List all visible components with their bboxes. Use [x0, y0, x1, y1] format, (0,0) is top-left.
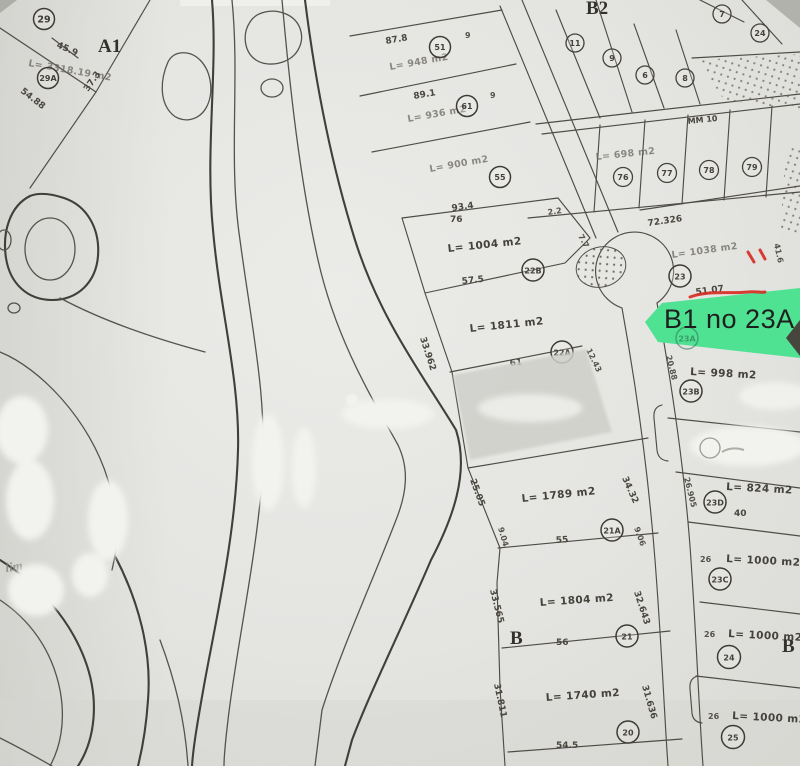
- parcel-11-number-badge: 11: [566, 34, 584, 52]
- svg-text:21A: 21A: [603, 527, 621, 536]
- svg-text:23C: 23C: [711, 576, 728, 585]
- svg-text:23B: 23B: [682, 388, 699, 397]
- parcel-61-tick: 9: [490, 91, 496, 100]
- parcel-8-number-badge: 8: [676, 69, 694, 87]
- parcel-79-number-badge: 79: [743, 158, 762, 177]
- svg-text:78: 78: [703, 166, 715, 175]
- svg-text:9: 9: [609, 54, 615, 63]
- parcel-25-number-badge: 25: [722, 726, 745, 749]
- svg-text:7: 7: [719, 10, 725, 19]
- parcel-9-number-badge: 9: [603, 49, 621, 67]
- svg-text:29A: 29A: [39, 74, 57, 83]
- parcel-51-tick: 9: [465, 31, 471, 40]
- map-canvas: lim 29 A1 45.9 L= 3318.19 m2 29A 54.88 3…: [0, 0, 800, 766]
- parcel-7-number-badge: 7: [713, 5, 731, 23]
- parcel-21-front: 56: [556, 638, 569, 648]
- parcel-20-number-badge: 20: [617, 721, 639, 743]
- highlight-label: B1 no 23A: [664, 304, 795, 334]
- zone-a1-label: A1: [98, 36, 121, 57]
- parcel-23c-number-badge: 23C: [709, 568, 731, 590]
- parcel-23d-number-badge: 23D: [704, 491, 726, 513]
- svg-text:77: 77: [661, 169, 672, 178]
- svg-text:51: 51: [434, 43, 446, 52]
- parcel-25-front-left: 26: [708, 712, 720, 721]
- parcel-6-number-badge: 6: [636, 66, 654, 84]
- svg-text:79: 79: [746, 163, 758, 172]
- svg-text:22B: 22B: [524, 267, 541, 276]
- parcel-77-number-badge: 77: [658, 164, 677, 183]
- parcel-23-number-badge: 23: [669, 265, 691, 287]
- svg-text:24: 24: [723, 654, 735, 663]
- svg-text:23D: 23D: [706, 499, 724, 508]
- parcel-23d-front: 40: [734, 509, 747, 519]
- svg-text:24: 24: [754, 29, 766, 38]
- parcel-78-number-badge: 78: [700, 161, 719, 180]
- cadastral-map-photo: lim 29 A1 45.9 L= 3318.19 m2 29A 54.88 3…: [0, 0, 800, 766]
- parcel-21-number-badge: 21: [616, 625, 638, 647]
- svg-text:76: 76: [617, 173, 629, 182]
- svg-text:20: 20: [622, 729, 634, 738]
- parcel-24-front-left: 26: [704, 630, 716, 639]
- svg-text:8: 8: [682, 74, 688, 83]
- parcel-51-number-badge: 51: [430, 37, 451, 58]
- zone-b-right-label: B: [782, 636, 795, 657]
- parcel-76-number-badge: 76: [614, 168, 633, 187]
- parcel-24b2-number-badge: 24: [751, 24, 769, 42]
- svg-text:21: 21: [621, 633, 633, 642]
- paper-background: [0, 0, 800, 766]
- parcel-24-number-badge: 24: [718, 646, 741, 669]
- parcel-61-number-badge: 61: [457, 96, 478, 117]
- svg-text:23A: 23A: [678, 335, 696, 344]
- svg-text:29: 29: [37, 15, 50, 26]
- parcel-22b-top: 76: [450, 215, 463, 225]
- svg-text:23: 23: [674, 273, 685, 282]
- svg-text:6: 6: [642, 71, 648, 80]
- svg-text:25: 25: [727, 734, 739, 743]
- svg-text:61: 61: [461, 102, 473, 111]
- parcel-55-number-badge: 55: [490, 167, 511, 188]
- parcel-21a-front: 55: [556, 535, 569, 546]
- svg-text:11: 11: [569, 39, 581, 48]
- parcel-20-front: 54.5: [556, 741, 578, 751]
- parcel-22b-number-badge: 22B: [522, 259, 544, 281]
- parcel-29a-number-badge: 29A: [38, 68, 59, 89]
- zone-b-left-label: B: [510, 628, 523, 649]
- parcel-23c-front-left: 26: [700, 555, 712, 564]
- parcel-21a-number-badge: 21A: [601, 519, 623, 541]
- parcel-29-number-badge: 29: [34, 9, 55, 30]
- parcel-23b-number-badge: 23B: [680, 380, 702, 402]
- svg-text:55: 55: [494, 173, 506, 182]
